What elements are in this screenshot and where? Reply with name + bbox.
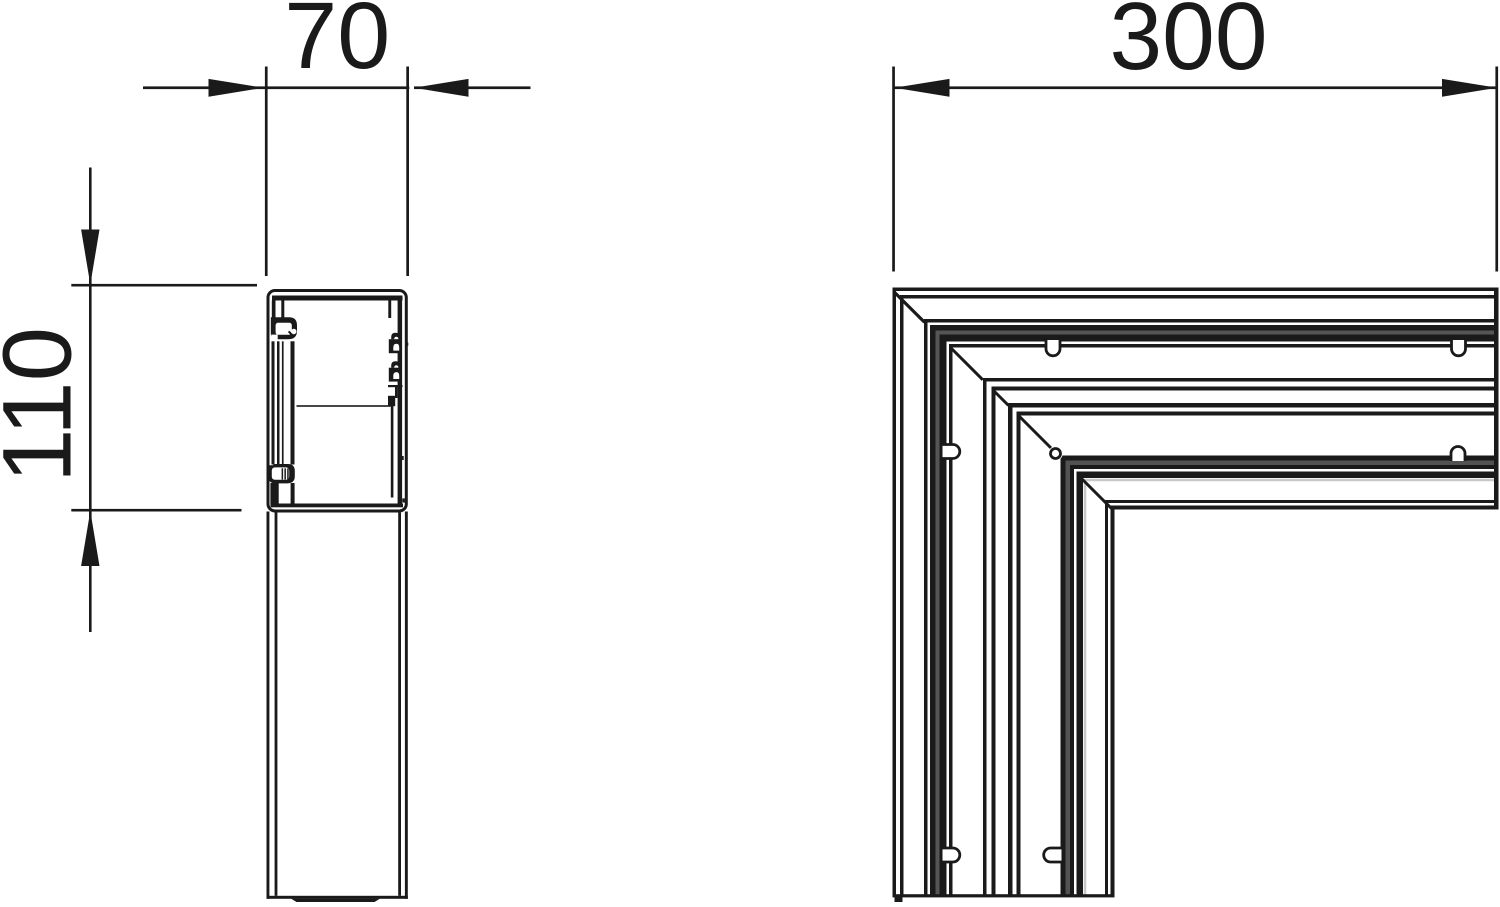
svg-text:110: 110 <box>0 327 92 483</box>
svg-text:300: 300 <box>1110 0 1268 90</box>
svg-text:70: 70 <box>284 0 390 89</box>
